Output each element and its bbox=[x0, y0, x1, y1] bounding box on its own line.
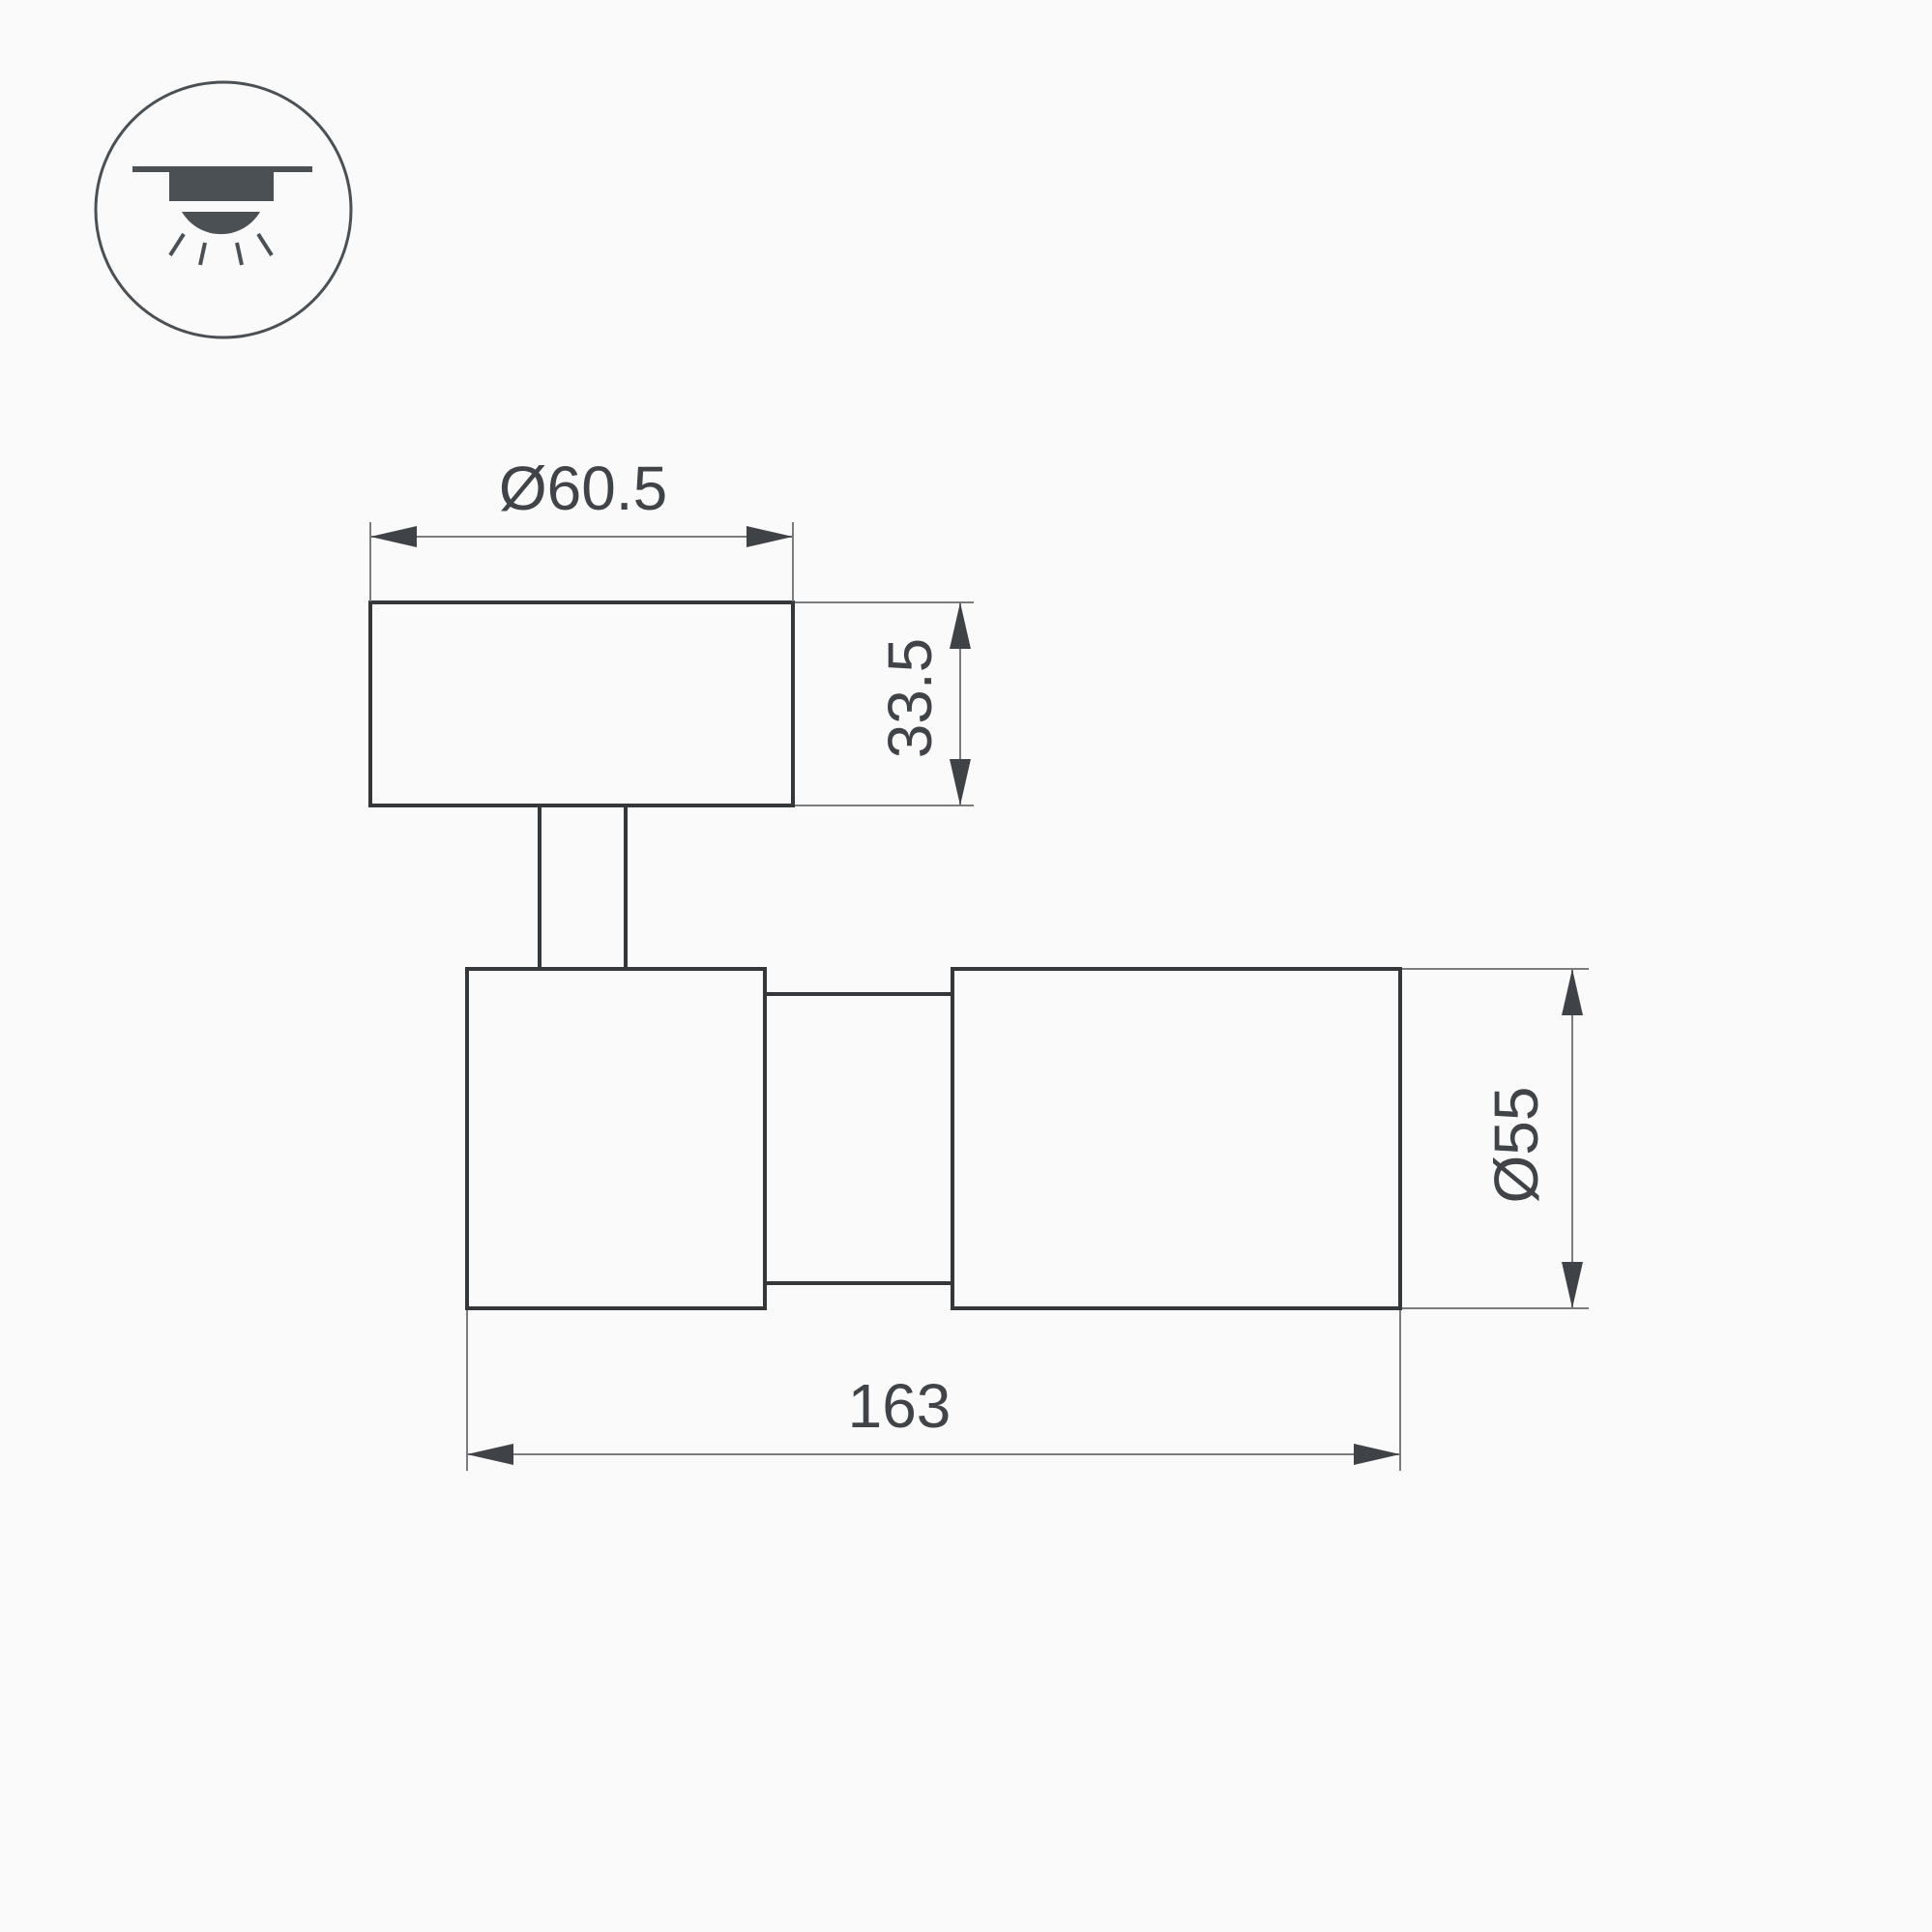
arrowhead-down bbox=[950, 759, 971, 805]
arrowhead-up bbox=[950, 602, 971, 649]
mount-type-badge bbox=[96, 82, 351, 337]
ceiling-line bbox=[132, 166, 312, 172]
body-rear-outline bbox=[467, 969, 765, 1308]
mount-base-outline bbox=[370, 602, 793, 805]
badge-circle bbox=[96, 82, 351, 337]
body-mid-ring-outline bbox=[765, 994, 952, 1283]
arrowhead-up bbox=[1562, 969, 1583, 1015]
arrowhead-left bbox=[467, 1444, 513, 1465]
dimension-label-mount-height: 33.5 bbox=[875, 638, 945, 759]
luminaire-dimension-drawing: Ø60.5 33.5 Ø55 163 bbox=[0, 0, 1932, 1932]
arrowhead-right bbox=[746, 526, 793, 547]
arrowhead-left bbox=[370, 526, 417, 547]
light-ray bbox=[258, 234, 272, 255]
light-ray bbox=[237, 243, 242, 265]
dimension-label-body-diameter: Ø55 bbox=[1481, 1087, 1551, 1204]
dimension-body-length: 163 bbox=[467, 1310, 1400, 1471]
dimension-body-diameter: Ø55 bbox=[1402, 969, 1589, 1308]
dimension-mount-height: 33.5 bbox=[795, 602, 974, 805]
body-head-outline bbox=[952, 969, 1400, 1308]
dimension-mount-diameter: Ø60.5 bbox=[370, 454, 793, 601]
dimension-label-body-length: 163 bbox=[848, 1371, 951, 1441]
technical-drawing-canvas: Ø60.5 33.5 Ø55 163 bbox=[0, 0, 1932, 1932]
recessed-fixture-body bbox=[169, 172, 274, 201]
arrowhead-right bbox=[1354, 1444, 1400, 1465]
light-ray bbox=[200, 243, 205, 265]
dimension-label-mount-diameter: Ø60.5 bbox=[499, 454, 667, 523]
light-ray bbox=[170, 234, 184, 255]
ceiling-mount-light-icon bbox=[132, 166, 312, 265]
lamp-dome bbox=[182, 212, 260, 234]
arrowhead-down bbox=[1562, 1262, 1583, 1308]
